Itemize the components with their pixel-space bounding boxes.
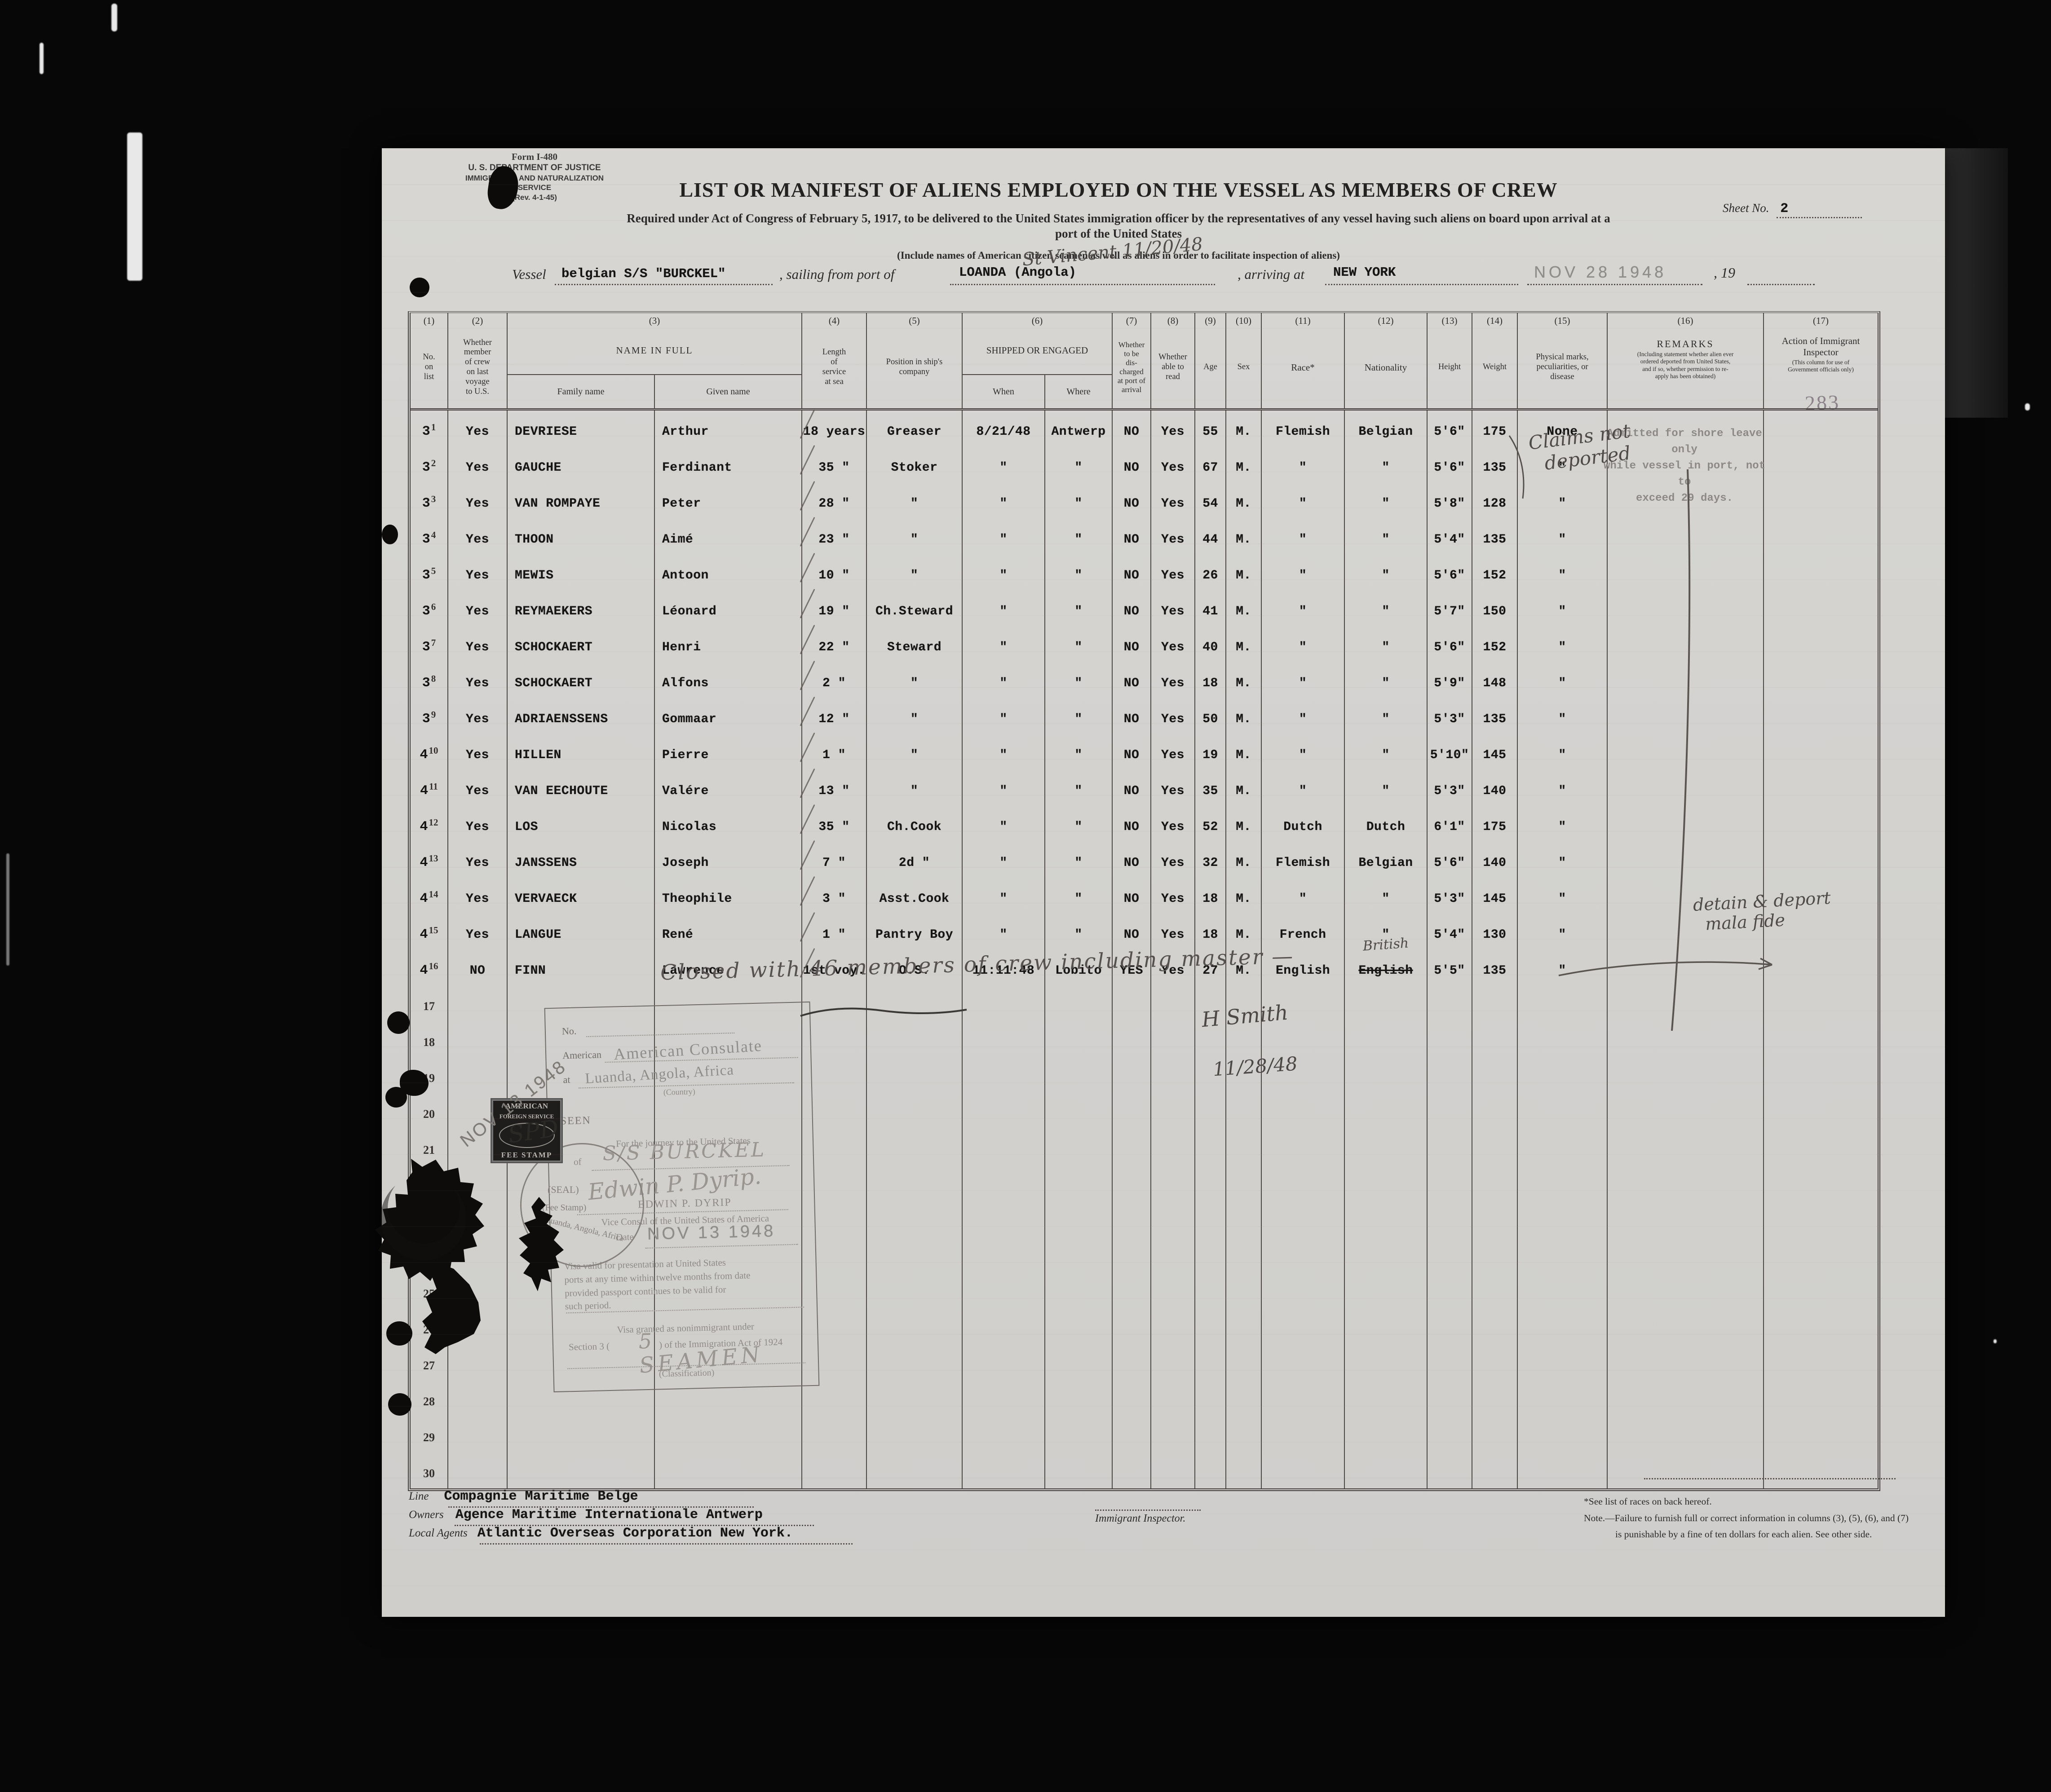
cell-remarks (1608, 770, 1764, 806)
cell-action (1764, 734, 1878, 770)
cell-action (1764, 1165, 1878, 1201)
cell-read: Yes (1151, 662, 1195, 698)
cell-position (867, 1417, 963, 1452)
cell-position (867, 1309, 963, 1345)
cell-sex: M. (1226, 518, 1262, 554)
agents-value: Atlantic Overseas Corporation New York. (477, 1526, 793, 1541)
seal-word: (SEAL) (548, 1184, 579, 1196)
cell-position (867, 1345, 963, 1381)
cell-discharged: NO (1113, 662, 1151, 698)
cell-family: VAN EECHOUTE (508, 770, 655, 806)
cell-given (655, 1417, 802, 1452)
cell-action (1764, 518, 1878, 554)
cell-service: 13 " (802, 770, 867, 806)
cell-when: " (963, 806, 1045, 842)
cell-where: " (1045, 446, 1113, 482)
cell-where (1045, 1273, 1113, 1309)
cell-sex (1226, 1309, 1262, 1345)
cell-marks (1518, 1452, 1608, 1488)
cell-weight (1472, 1309, 1518, 1345)
table-row: 414YesVERVAECKTheophile3 "Asst.Cook""NOY… (411, 878, 1878, 914)
cell-age (1195, 1165, 1226, 1201)
cell-family: MEWIS (508, 554, 655, 590)
subtitle-required: Required under Act of Congress of Februa… (579, 211, 1658, 226)
owners-label: Owners (409, 1509, 444, 1521)
cell-discharged (1113, 1273, 1151, 1309)
cell-sex: M. (1226, 554, 1262, 590)
punch-hole (388, 1393, 411, 1416)
cell-nationality: " (1345, 734, 1428, 770)
cell-where: " (1045, 770, 1113, 806)
cell-no: 38 (411, 662, 448, 698)
col-discharged: (7)Whether to be dis- charged at port of… (1113, 313, 1151, 408)
detain-deport-note: detain & deport mala fide (1693, 888, 1832, 935)
table-row: 34YesTHOONAimé23 """"NOYes44M.""5'4"135" (411, 518, 1878, 554)
cell-when (963, 1381, 1045, 1417)
cell-remarks (1608, 1381, 1764, 1417)
cell-no: 37 (411, 626, 448, 662)
cell-service (802, 1417, 867, 1452)
cell-service (802, 985, 867, 1021)
cell-nationality (1345, 1021, 1428, 1057)
cell-height: 5'6" (1428, 446, 1472, 482)
cell-when: " (963, 770, 1045, 806)
cell-race (1262, 1237, 1345, 1273)
cell-marks (1518, 1201, 1608, 1237)
cell-marks: " (1518, 482, 1608, 518)
cell-sex (1226, 1165, 1262, 1201)
cell-discharged (1113, 1201, 1151, 1237)
cell-position: " (867, 662, 963, 698)
cell-height (1428, 1345, 1472, 1381)
cell-action (1764, 626, 1878, 662)
cell-member: Yes (448, 554, 508, 590)
cell-weight: 150 (1472, 590, 1518, 626)
cell-race: Dutch (1262, 806, 1345, 842)
cell-no: 415 (411, 914, 448, 949)
cell-action (1764, 482, 1878, 518)
cell-where: " (1045, 806, 1113, 842)
cell-position: " (867, 482, 963, 518)
cell-position (867, 1165, 963, 1201)
ink-blob (514, 1197, 566, 1293)
table-row: 38YesSCHOCKAERTAlfons2 """"NOYes18M.""5'… (411, 662, 1878, 698)
cell-member: Yes (448, 626, 508, 662)
col-able-to-read: (8)Whether able to read (1151, 313, 1195, 408)
cell-remarks (1608, 1165, 1764, 1201)
cell-race (1262, 1452, 1345, 1488)
cell-height (1428, 1201, 1472, 1237)
cell-read (1151, 1309, 1195, 1345)
cell-position: " (867, 698, 963, 734)
cell-nationality (1345, 1452, 1428, 1488)
cell-member: Yes (448, 770, 508, 806)
cell-nationality: " (1345, 698, 1428, 734)
cell-discharged: NO (1113, 482, 1151, 518)
col-physical-marks: (15)Physical marks, peculiarities, or di… (1518, 313, 1608, 408)
cell-sex (1226, 1452, 1262, 1488)
cell-member (448, 1417, 508, 1452)
cell-no: 410 (411, 734, 448, 770)
cell-nationality: " (1345, 878, 1428, 914)
cell-race (1262, 1345, 1345, 1381)
cell-no: 18 (411, 1021, 448, 1057)
cell-position (867, 985, 963, 1021)
cell-sex (1226, 1237, 1262, 1273)
section-left: Section 3 ( (569, 1341, 610, 1353)
cell-given: Theophile (655, 878, 802, 914)
cell-service: 35 " (802, 446, 867, 482)
fine-note-line1: Note.—Failure to furnish full or correct… (1584, 1510, 1909, 1527)
cell-where: " (1045, 626, 1113, 662)
cell-given: Léonard (655, 590, 802, 626)
cell-no: 30 (411, 1452, 448, 1488)
cell-when: " (963, 878, 1045, 914)
cell-no: 413 (411, 842, 448, 878)
visa-no-label: No. (562, 1025, 577, 1037)
cell-action (1764, 806, 1878, 842)
cell-member: Yes (448, 518, 508, 554)
cell-age: 50 (1195, 698, 1226, 734)
cell-nationality: " (1345, 482, 1428, 518)
cell-height (1428, 1057, 1472, 1093)
granted-line: Visa granted as nonimmigrant under (566, 1320, 804, 1337)
cell-age: 18 (1195, 914, 1226, 949)
cell-nationality (1345, 1201, 1428, 1237)
cell-no: 414 (411, 878, 448, 914)
cell-service: 18 years (802, 410, 867, 446)
cell-read (1151, 1129, 1195, 1165)
table-row: 35YesMEWISAntoon10 """"NOYes26M.""5'6"15… (411, 554, 1878, 590)
cell-position: " (867, 554, 963, 590)
cell-age (1195, 1452, 1226, 1488)
cell-service: 23 " (802, 518, 867, 554)
table-row: 412YesLOSNicolas35 "Ch.Cook""NOYes52M.Du… (411, 806, 1878, 842)
cell-remarks (1608, 985, 1764, 1021)
cell-when (963, 1273, 1045, 1309)
cell-discharged: NO (1113, 626, 1151, 662)
cell-given: Alfons (655, 662, 802, 698)
cell-height: 5'9" (1428, 662, 1472, 698)
cell-read: Yes (1151, 698, 1195, 734)
cell-sex: M. (1226, 410, 1262, 446)
cell-remarks (1608, 1309, 1764, 1345)
cell-member: Yes (448, 662, 508, 698)
film-edge (1945, 148, 2008, 418)
cell-member: Yes (448, 482, 508, 518)
cell-member: Yes (448, 806, 508, 842)
footer-line-row: Line Compagnie Maritime Belge (409, 1489, 638, 1504)
cell-discharged: NO (1113, 806, 1151, 842)
cell-race: " (1262, 734, 1345, 770)
vessel-rule (555, 283, 773, 285)
cell-sex (1226, 1273, 1262, 1309)
cell-sex: M. (1226, 914, 1262, 949)
cell-position (867, 1237, 963, 1273)
scan-streak (127, 132, 142, 281)
cell-read (1151, 1417, 1195, 1452)
form-number: Form I-480 (449, 151, 620, 163)
date-rule (1527, 283, 1702, 285)
cell-given: René (655, 914, 802, 949)
cell-where: " (1045, 554, 1113, 590)
cell-member: Yes (448, 842, 508, 878)
vessel-name-handwritten: S/S BURCKEL (602, 1138, 766, 1165)
table-row-empty: 29 (411, 1417, 1878, 1452)
cell-family: GAUCHE (508, 446, 655, 482)
cell-when (963, 1452, 1045, 1488)
cell-age: 26 (1195, 554, 1226, 590)
cell-race (1262, 1129, 1345, 1165)
cell-nationality: " (1345, 770, 1428, 806)
cell-given: Gommaar (655, 698, 802, 734)
cell-where (1045, 1345, 1113, 1381)
footer-notes: *See list of races on back hereof. Note.… (1584, 1493, 1909, 1543)
cell-where (1045, 1237, 1113, 1273)
cell-member: Yes (448, 446, 508, 482)
cell-age (1195, 1345, 1226, 1381)
cell-position: Pantry Boy (867, 914, 963, 949)
cell-when: " (963, 626, 1045, 662)
cell-marks: " (1518, 806, 1608, 842)
cell-given (655, 1452, 802, 1488)
cell-age: 19 (1195, 734, 1226, 770)
cell-member (448, 1057, 508, 1093)
owners-value: Agence Maritime Internationale Antwerp (455, 1507, 763, 1523)
subcol-given-name: Given name (655, 375, 801, 408)
cell-position: " (867, 734, 963, 770)
cell-age: 54 (1195, 482, 1226, 518)
cell-remarks (1608, 698, 1764, 734)
cell-where: " (1045, 662, 1113, 698)
cell-discharged (1113, 1057, 1151, 1093)
col-name-in-full: (3) NAME IN FULL Family name Given name (508, 313, 802, 408)
cell-read (1151, 1021, 1195, 1057)
cell-given: Arthur (655, 410, 802, 446)
cell-age: 67 (1195, 446, 1226, 482)
cell-position (867, 1129, 963, 1165)
cell-no: 33 (411, 482, 448, 518)
cell-family: VERVAECK (508, 878, 655, 914)
cell-no: 411 (411, 770, 448, 806)
col-nationality: (12)Nationality (1345, 313, 1428, 408)
cell-position: Ch.Steward (867, 590, 963, 626)
scanned-manifest-screen: Form I-480 U. S. DEPARTMENT OF JUSTICE I… (0, 0, 2051, 1792)
cell-where: " (1045, 590, 1113, 626)
cell-race: " (1262, 482, 1345, 518)
cell-where (1045, 1129, 1113, 1165)
cell-weight: 148 (1472, 662, 1518, 698)
cell-remarks (1608, 1201, 1764, 1237)
table-row: 411YesVAN EECHOUTEValére13 """"NOYes35M.… (411, 770, 1878, 806)
cell-service: 28 " (802, 482, 867, 518)
cell-remarks (1608, 1345, 1764, 1381)
cell-action (1764, 1309, 1878, 1345)
cell-read (1151, 1273, 1195, 1309)
cell-where: " (1045, 734, 1113, 770)
cell-race (1262, 1093, 1345, 1129)
cell-read: Yes (1151, 770, 1195, 806)
cell-action (1764, 446, 1878, 482)
cell-discharged: NO (1113, 590, 1151, 626)
cell-nationality (1345, 1273, 1428, 1309)
cell-where (1045, 985, 1113, 1021)
footer-owners-row: Owners Agence Maritime Internationale An… (409, 1507, 763, 1523)
scan-streak (40, 43, 44, 74)
cell-sex: M. (1226, 662, 1262, 698)
cell-height: 5'6" (1428, 842, 1472, 878)
cell-when (963, 1201, 1045, 1237)
col-sex: (10)Sex (1226, 313, 1262, 408)
cell-action (1764, 410, 1878, 446)
cell-nationality (1345, 1417, 1428, 1452)
cell-race: " (1262, 590, 1345, 626)
cell-when: " (963, 590, 1045, 626)
cell-action (1764, 1381, 1878, 1417)
cell-where (1045, 1309, 1113, 1345)
cell-height (1428, 1273, 1472, 1309)
cell-where (1045, 1381, 1113, 1417)
cell-sex (1226, 1129, 1262, 1165)
cell-marks (1518, 1093, 1608, 1129)
cell-age: 35 (1195, 770, 1226, 806)
cell-action (1764, 554, 1878, 590)
cell-service: 2 " (802, 662, 867, 698)
cell-position (867, 1021, 963, 1057)
cell-weight: 135 (1472, 446, 1518, 482)
cell-sex: M. (1226, 698, 1262, 734)
vessel-value: belgian S/S "BURCKEL" (561, 266, 725, 281)
col-weight: (14)Weight (1472, 313, 1518, 408)
cell-weight (1472, 1273, 1518, 1309)
cell-action (1764, 1201, 1878, 1237)
cell-height: 5'8" (1428, 482, 1472, 518)
cell-position: Steward (867, 626, 963, 662)
cell-height: 5'10" (1428, 734, 1472, 770)
cell-when (963, 1093, 1045, 1129)
cell-when: " (963, 662, 1045, 698)
cell-sex (1226, 1093, 1262, 1129)
cell-when (963, 1057, 1045, 1093)
cell-read: Yes (1151, 482, 1195, 518)
cell-age: 44 (1195, 518, 1226, 554)
cell-remarks (1608, 1452, 1764, 1488)
cell-member: Yes (448, 590, 508, 626)
cell-member: Yes (448, 734, 508, 770)
cell-age (1195, 1381, 1226, 1417)
cell-read: Yes (1151, 410, 1195, 446)
cell-age: 18 (1195, 878, 1226, 914)
cell-nationality (1345, 1237, 1428, 1273)
cell-position (867, 1201, 963, 1237)
cell-sex: M. (1226, 626, 1262, 662)
cell-height (1428, 1021, 1472, 1057)
cell-race (1262, 1309, 1345, 1345)
cell-weight (1472, 1452, 1518, 1488)
scan-streak (111, 4, 117, 31)
cell-marks (1518, 1417, 1608, 1452)
table-row: 413YesJANSSENSJoseph7 "2d """NOYes32M.Fl… (411, 842, 1878, 878)
cell-sex: M. (1226, 446, 1262, 482)
cell-when: " (963, 446, 1045, 482)
cell-height (1428, 1417, 1472, 1452)
cell-nationality (1345, 1129, 1428, 1165)
cell-nationality: " (1345, 662, 1428, 698)
cell-read (1151, 1165, 1195, 1201)
punch-hole (410, 278, 429, 297)
cell-race: " (1262, 662, 1345, 698)
cell-sex (1226, 1381, 1262, 1417)
year-rule (1747, 283, 1815, 285)
cell-race: " (1262, 698, 1345, 734)
cell-marks: " (1518, 590, 1608, 626)
cell-height (1428, 1129, 1472, 1165)
col-age: (9)Age (1195, 313, 1226, 408)
cell-weight (1472, 1021, 1518, 1057)
cell-given: Valére (655, 770, 802, 806)
cell-family: JANSSENS (508, 842, 655, 878)
cell-read: Yes (1151, 806, 1195, 842)
cell-remarks (1608, 1057, 1764, 1093)
cell-marks (1518, 1237, 1608, 1273)
table-header: (1)No. on list (2)Whether member of crew… (411, 313, 1878, 410)
cell-family: HILLEN (508, 734, 655, 770)
cell-height (1428, 1237, 1472, 1273)
seen-label: SEEN (560, 1115, 591, 1128)
cell-remarks (1608, 949, 1764, 985)
cell-sex: M. (1226, 734, 1262, 770)
cell-discharged (1113, 1345, 1151, 1381)
cell-family: DEVRIESE (508, 410, 655, 446)
cell-sex: M. (1226, 806, 1262, 842)
col-length-of-service: (4)Length of service at sea (802, 313, 867, 408)
cell-where (1045, 1452, 1113, 1488)
cell-action (1764, 985, 1878, 1021)
year-label: , 19 (1714, 265, 1735, 281)
cell-race (1262, 1381, 1345, 1417)
cell-sex (1226, 1201, 1262, 1237)
cell-action (1764, 1129, 1878, 1165)
port-rule (950, 283, 1215, 285)
cell-no: 28 (411, 1381, 448, 1417)
cell-weight: 152 (1472, 554, 1518, 590)
arrival-rule (1325, 283, 1518, 285)
cell-when: " (963, 518, 1045, 554)
cell-where (1045, 1021, 1113, 1057)
cell-age (1195, 1417, 1226, 1452)
cell-no: 412 (411, 806, 448, 842)
cell-discharged: NO (1113, 518, 1151, 554)
cell-given: Ferdinant (655, 446, 802, 482)
cell-service: 7 " (802, 842, 867, 878)
cell-where: " (1045, 518, 1113, 554)
cell-member: Yes (448, 410, 508, 446)
cell-when: " (963, 842, 1045, 878)
cell-when: " (963, 554, 1045, 590)
fine-note-line2: is punishable by a fine of ten dollars f… (1615, 1526, 1909, 1543)
cell-family: REYMAEKERS (508, 590, 655, 626)
cell-height: 5'4" (1428, 914, 1472, 949)
cell-no: 35 (411, 554, 448, 590)
cell-weight: 145 (1472, 734, 1518, 770)
cell-action (1764, 1093, 1878, 1129)
cell-position: " (867, 518, 963, 554)
cell-marks: " (1518, 770, 1608, 806)
line-label: Line (409, 1490, 429, 1502)
cell-discharged: NO (1113, 554, 1151, 590)
cell-weight: 135 (1472, 518, 1518, 554)
arrival-date-stamp: NOV 28 1948 (1534, 263, 1666, 282)
